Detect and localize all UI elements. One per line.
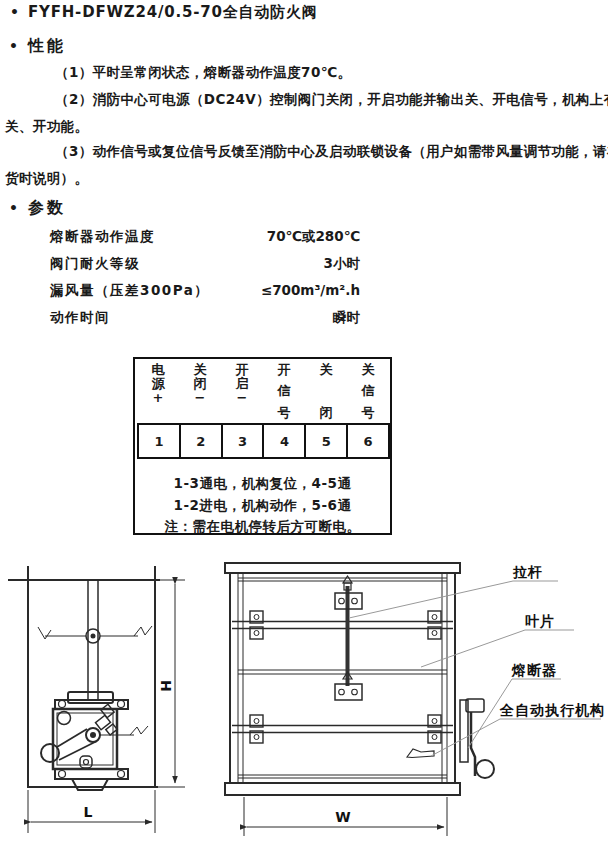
header-char: 开 (221, 363, 263, 377)
title-bullet-icon: • (10, 5, 19, 19)
header-char: 号 (263, 406, 305, 420)
side-drive-rod (88, 580, 98, 700)
terminal-header-col-1: 电 源 + (137, 359, 179, 423)
manual-lever-knob (41, 744, 59, 762)
label-pull-rod: 拉杆 (512, 564, 543, 580)
parameter-label: 漏风量（压差300Pa） (50, 282, 225, 300)
header-char: 关 (347, 363, 389, 377)
parameter-row: 阀门耐火等级3小时 (50, 253, 360, 273)
header-char: − (179, 391, 221, 405)
terminal-header-col-3: 开 启 − (221, 359, 263, 423)
header-char: 源 (137, 377, 179, 391)
label-blade: 叶片 (525, 613, 555, 629)
label-fuse: 熔断器 (511, 662, 557, 678)
dimension-W: W (244, 797, 447, 836)
performance-heading: 性能 (28, 36, 66, 57)
terminal-header-col-6: 关 信 号 (347, 359, 389, 423)
side-view-drawing: H L (8, 566, 185, 833)
pull-rod (335, 576, 362, 700)
terminal-strip: 1 2 3 4 5 6 (137, 423, 390, 459)
front-view-drawing: W 拉杆 叶片 熔断器 全自动执行机构 (225, 563, 605, 836)
parameters-heading: 参数 (28, 198, 66, 219)
terminal-header-col-4: 开 信 号 (263, 359, 305, 423)
terminal-5: 5 (304, 425, 346, 457)
header-char: + (137, 391, 179, 405)
parameter-row: 熔断器动作温度70℃或280℃ (50, 226, 360, 246)
blade-shaft-lower (232, 715, 453, 743)
actuator-knob (476, 760, 494, 778)
performance-bullet-icon: • (9, 39, 18, 53)
document-page: • FYFH-DFWZ24/0.5-70全自动防火阀 • 性能 （1）平时呈常闭… (0, 0, 608, 842)
wiring-note-1: 1-3通电，机构复位，4-5通 (135, 475, 390, 493)
header-char: 开 (263, 363, 305, 377)
side-actuator-mechanism (41, 692, 148, 790)
performance-item-1: （1）平时呈常闭状态，熔断器动作温度70℃。 (55, 64, 351, 82)
parameter-row: 动作时间瞬时 (50, 307, 360, 327)
terminal-header-col-2: 关 闭 − (179, 359, 221, 423)
wiring-note-2: 1-2进电，机构动作，5-6通 (135, 497, 390, 515)
front-bottom-flange (225, 783, 460, 795)
blade-edge-line (238, 670, 447, 674)
performance-item-3-line-2: 货时说明）。 (5, 170, 88, 188)
parameter-value: ≤700m³/m².h (225, 282, 360, 298)
dimension-H: H (158, 580, 185, 787)
header-char: 号 (347, 406, 389, 420)
header-char: 电 (137, 363, 179, 377)
label-auto-actuator: 全自动执行机构 (499, 702, 605, 718)
parameter-value: 70℃或280℃ (225, 228, 360, 246)
parameter-value: 3小时 (225, 255, 360, 273)
terminal-6: 6 (346, 425, 388, 457)
front-inner-frame (238, 573, 447, 783)
terminal-1: 1 (139, 425, 179, 457)
callout-auto-actuator: 全自动执行机构 (431, 702, 605, 756)
dimension-L: L (28, 790, 155, 833)
parameters-bullet-icon: • (9, 201, 18, 215)
wiring-note-3: 注：需在电机停转后方可断电。 (135, 518, 390, 536)
inner-handle-shape (407, 749, 434, 758)
dim-height-label: H (158, 680, 174, 692)
header-char: − (221, 391, 263, 405)
technical-drawings: H L (0, 545, 608, 842)
header-char: 闭 (305, 406, 347, 420)
terminal-4: 4 (262, 425, 304, 457)
header-char: 信 (263, 384, 305, 398)
dim-width-label-W: W (335, 809, 350, 825)
header-char: 信 (347, 384, 389, 398)
performance-item-3-line-1: （3）动作信号或复位信号反馈至消防中心及启动联锁设备（用户如需带风量调节功能，请… (55, 143, 608, 161)
front-top-flange (225, 563, 460, 573)
page-title: FYFH-DFWZ24/0.5-70全自动防火阀 (28, 3, 317, 22)
parameter-label: 熔断器动作温度 (50, 228, 225, 246)
parameter-value: 瞬时 (225, 309, 360, 327)
terminal-2: 2 (179, 425, 221, 457)
terminal-3: 3 (221, 425, 263, 457)
parameter-row: 漏风量（压差300Pa）≤700m³/m².h (50, 280, 360, 300)
fuse-actuator-assembly (460, 699, 494, 778)
dim-width-label-L: L (84, 804, 93, 820)
performance-item-2-line-1: （2）消防中心可电源（DC24V）控制阀门关闭，开启功能并输出关、开电信号，机构… (55, 91, 608, 109)
header-char: 启 (221, 377, 263, 391)
blade-shaft-upper (232, 611, 453, 639)
performance-item-2-line-2: 关、开功能。 (5, 118, 88, 136)
parameter-label: 阀门耐火等级 (50, 255, 225, 273)
header-char: 闭 (179, 377, 221, 391)
terminal-wiring-table: 电 源 + 关 闭 − 开 启 − 开 信 号 关 闭 关 信 号 (133, 357, 392, 535)
side-blade-pivot (38, 626, 152, 643)
header-char: 关 (305, 363, 347, 377)
terminal-header-col-5: 关 闭 (305, 359, 347, 423)
parameter-label: 动作时间 (50, 309, 225, 327)
header-char: 关 (179, 363, 221, 377)
